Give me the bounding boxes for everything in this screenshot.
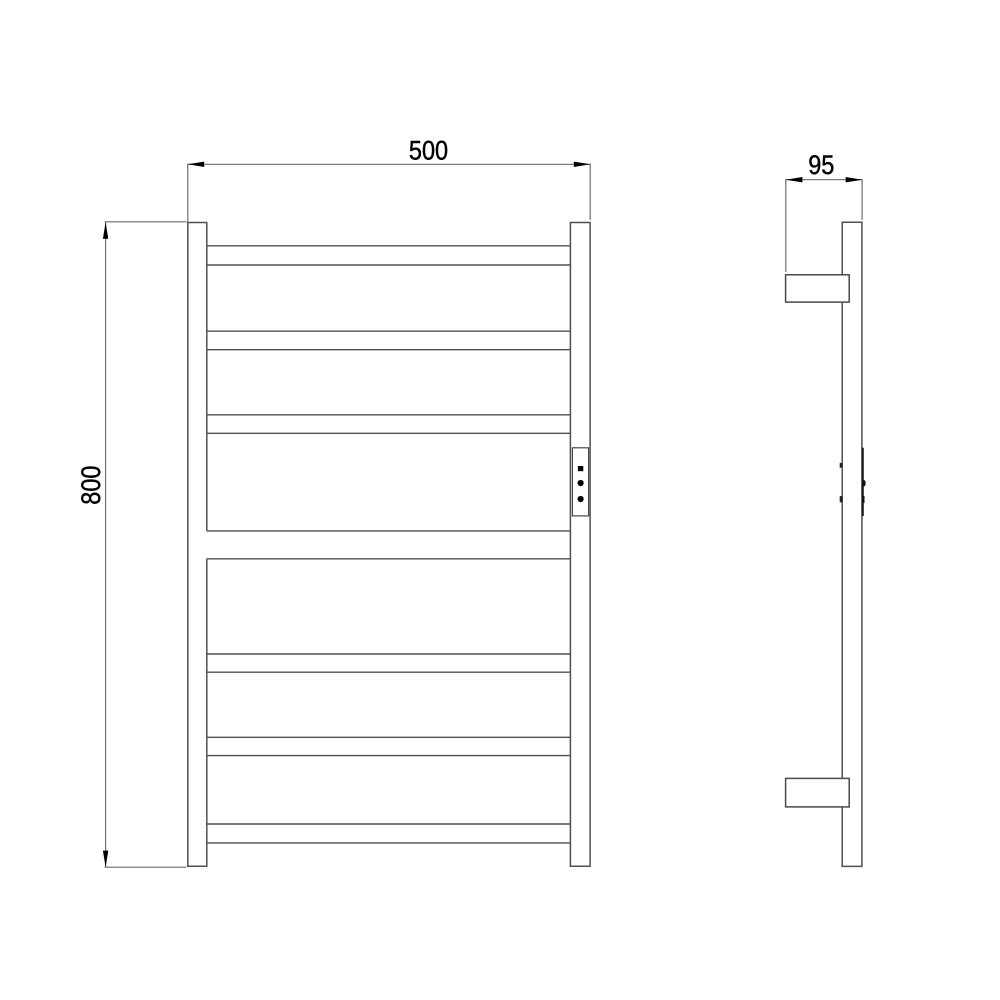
svg-text:800: 800 — [76, 466, 106, 505]
svg-text:500: 500 — [409, 136, 448, 166]
svg-text:95: 95 — [808, 151, 834, 181]
